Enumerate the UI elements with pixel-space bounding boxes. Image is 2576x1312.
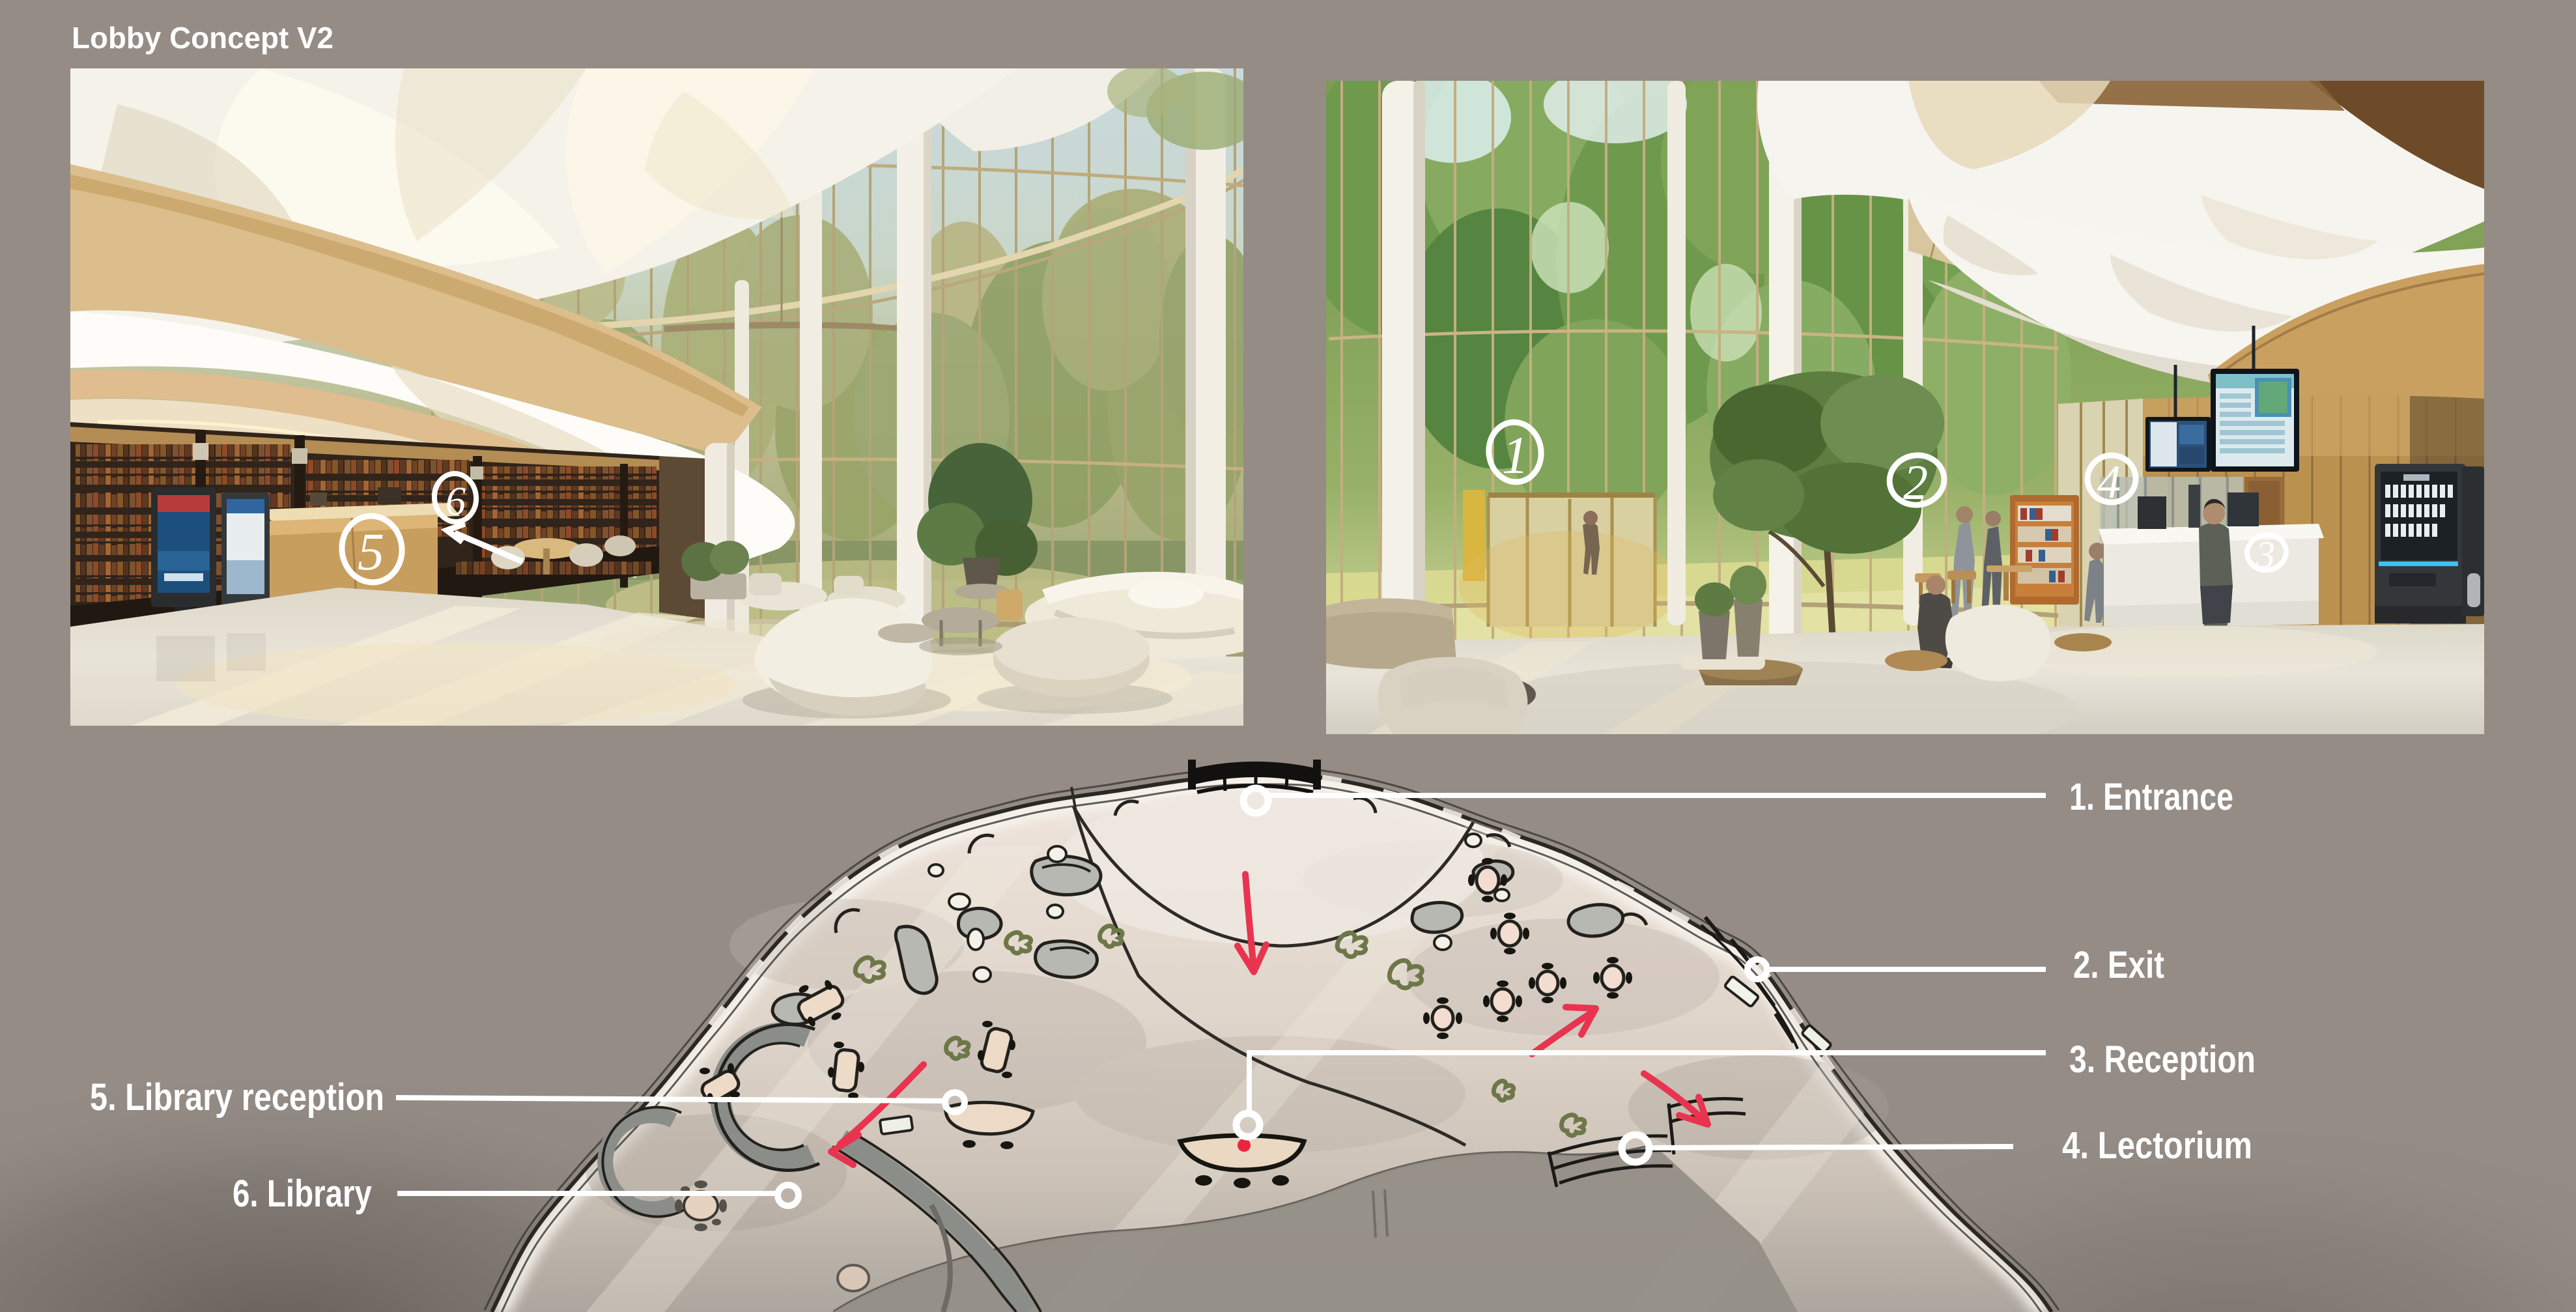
svg-text:2: 2 — [1903, 455, 1928, 510]
svg-text:4. Lectorium: 4. Lectorium — [2062, 1124, 2252, 1167]
svg-text:5. Library reception: 5. Library reception — [90, 1076, 384, 1119]
svg-text:2. Exit: 2. Exit — [2073, 944, 2164, 986]
svg-text:1. Entrance: 1. Entrance — [2069, 776, 2233, 818]
svg-text:6. Library: 6. Library — [233, 1173, 372, 1215]
svg-text:6: 6 — [446, 479, 466, 524]
svg-text:1: 1 — [1502, 425, 1529, 485]
svg-text:Lobby Concept V2: Lobby Concept V2 — [72, 21, 333, 55]
svg-text:3: 3 — [2256, 534, 2275, 576]
svg-text:5: 5 — [358, 522, 384, 581]
svg-text:4: 4 — [2097, 456, 2121, 508]
svg-text:3. Reception: 3. Reception — [2069, 1038, 2256, 1081]
